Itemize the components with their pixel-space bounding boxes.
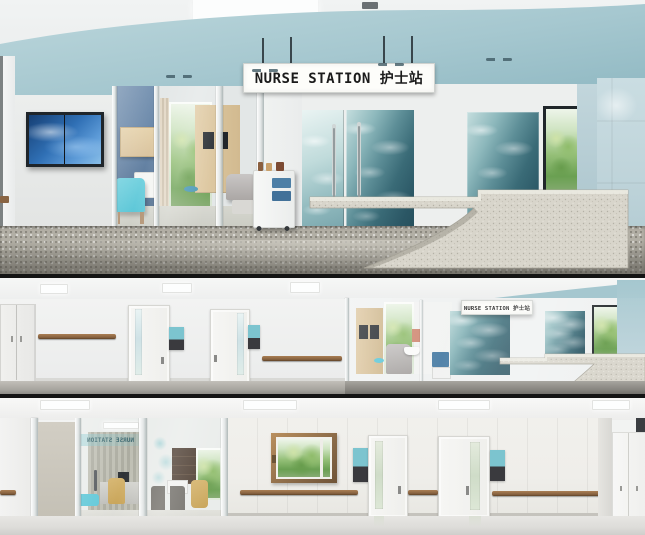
interior-window-latch	[272, 455, 276, 463]
interior-window-mullion	[320, 439, 323, 477]
ward-door-2	[210, 309, 250, 384]
nurse-station-sign-text: NURSE STATION 护士站	[255, 68, 424, 88]
ward-door-2-handle	[214, 355, 217, 362]
room-sign-plate-1	[169, 327, 184, 350]
handrail-0	[0, 490, 16, 495]
room-yellow-chair	[191, 480, 208, 508]
consult-room-glazed: NURSE STATION	[75, 418, 228, 528]
ceiling2-light-2	[243, 400, 297, 410]
corner-cabinet-seam	[628, 433, 629, 527]
handrail-4	[408, 490, 438, 495]
ward-door-3-glass	[375, 441, 383, 509]
room-mullion-3	[221, 418, 228, 528]
greige-wall	[38, 422, 75, 520]
room-dark-cabinet	[172, 448, 198, 484]
room-ceiling-light	[103, 422, 139, 429]
handrail-5	[492, 491, 600, 496]
double-door-seam	[16, 305, 17, 380]
ward-door-1-glass	[135, 309, 142, 375]
sign-rod-1	[262, 38, 264, 64]
double-door	[0, 304, 36, 383]
panel-corridor-room-view: NURSE STATION	[0, 398, 645, 535]
corner-reveal	[598, 418, 612, 518]
station-glass-mullion-1	[345, 298, 349, 383]
floor-reflection	[345, 381, 645, 394]
handrail-1	[38, 334, 116, 339]
spotlight-pair-2	[252, 69, 278, 72]
ceiling2-light-4	[592, 400, 630, 410]
corner-tv-edge	[636, 418, 645, 432]
room-mullion-1	[75, 418, 81, 528]
rendering-collage: NURSE STATION 护士站 NURSE STATION 护士站	[0, 0, 645, 535]
glass-door-pull	[94, 470, 97, 491]
sign-rod-2	[290, 37, 292, 64]
trolley-bottle-1	[258, 162, 263, 171]
ward-door-3	[368, 435, 408, 518]
panel-corridor-station-view: NURSE STATION 护士站	[0, 278, 645, 394]
ward-door-4-glass	[470, 442, 480, 510]
corridor2-floor	[0, 516, 645, 535]
trolley-bottle-3	[276, 162, 284, 171]
glass-teal-band: NURSE STATION	[75, 434, 145, 446]
room-office-chair	[108, 478, 125, 504]
ward-door-1-handle	[161, 357, 164, 364]
ceiling2-light-3	[438, 400, 490, 410]
sign-rod-3	[383, 36, 385, 64]
ward-door-4	[438, 436, 490, 518]
glass-mirrored-sign-text: NURSE STATION	[87, 437, 134, 444]
handrail-2	[262, 356, 342, 361]
door4-floor-reflection	[469, 516, 481, 527]
trolley-drawer-top	[272, 178, 291, 188]
double-door-handles	[11, 336, 22, 342]
spotlight-pair-1	[166, 75, 192, 78]
nurse-station-sign: NURSE STATION 护士站	[243, 63, 435, 93]
station-glass-mullion-2	[420, 300, 423, 383]
reception-desk	[0, 0, 645, 274]
partition-mullion	[31, 418, 38, 522]
ward-door-4-handle	[466, 486, 469, 495]
panel-lobby-view: NURSE STATION 护士站	[0, 0, 645, 274]
room-sign-plate-2	[248, 325, 260, 349]
door3-floor-reflection	[374, 516, 384, 527]
corridor2-ceiling	[0, 398, 645, 420]
trolley-drawer-bottom	[272, 191, 291, 201]
handrail-3	[240, 490, 358, 495]
corner-cabinet-handles	[620, 486, 638, 491]
spotlight-pair-3	[378, 63, 404, 66]
trolley-bottle-2	[266, 163, 272, 171]
trolley-wheels	[255, 226, 291, 231]
ward-door-3-handle	[398, 486, 401, 494]
spotlight-pair-4	[486, 58, 512, 61]
room-sign-plate-4	[490, 450, 505, 481]
ward-door-2-glass	[237, 313, 244, 375]
ceiling2-light-1	[40, 400, 90, 410]
sign-rod-4	[411, 36, 413, 64]
room-mullion-2	[139, 418, 147, 528]
left-wall	[0, 418, 32, 518]
